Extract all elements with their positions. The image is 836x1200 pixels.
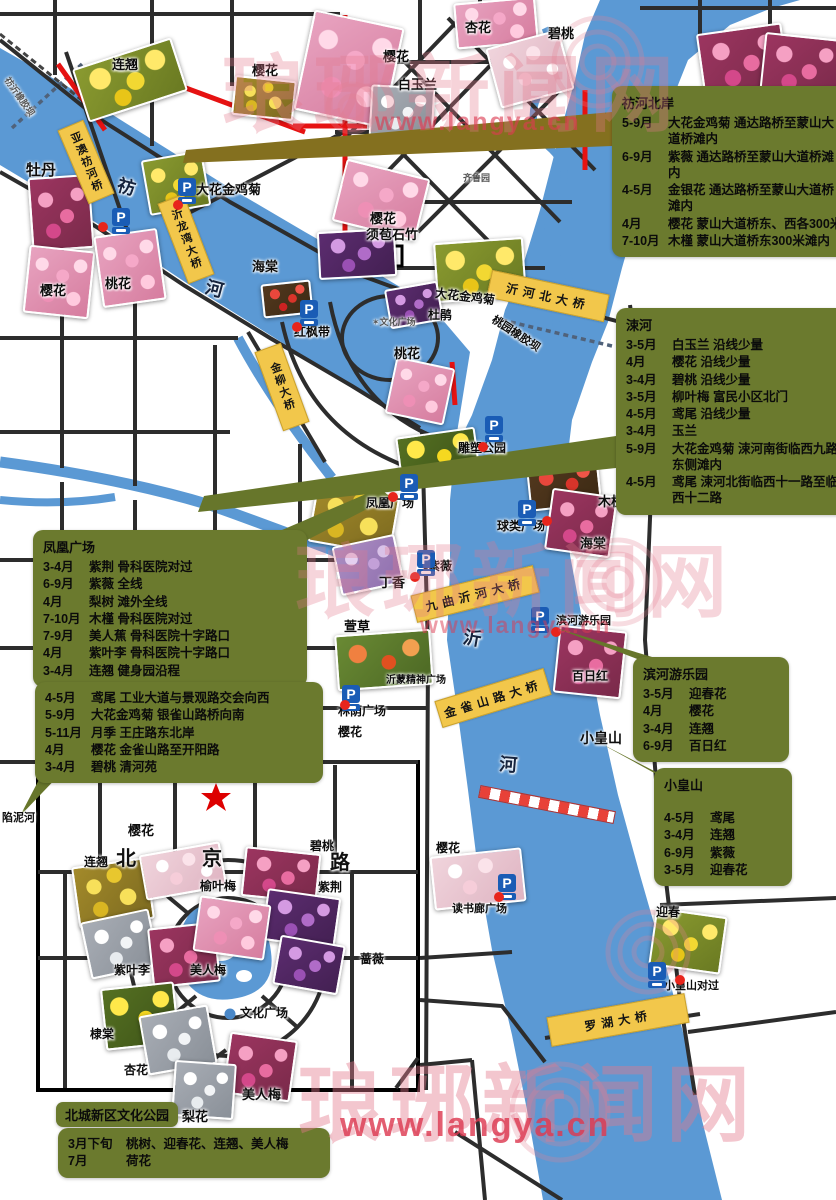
callout-line: 3-4月玉兰 [626,423,836,439]
callout-beicheng-chip: 北城新区文化公园 [56,1102,178,1127]
month-range: 7月 [68,1153,126,1169]
flower-location: 大花金鸡菊 涑河南街临西九路东侧滩内 [672,441,836,474]
month-range: 3-4月 [664,827,710,843]
callout-line: 5-9月大花金鸡菊 涑河南街临西九路东侧滩内 [626,441,836,474]
month-range: 3-5月 [626,389,672,405]
month-range: 3-4月 [45,759,91,775]
month-range: 3-4月 [626,372,672,388]
callout-line: 3-4月碧桃 清河苑 [45,759,313,775]
callout-line: 4-5月鸢尾 涑河北街临西十一路至临西十二路 [626,474,836,507]
month-range: 6-9月 [622,149,668,182]
month-range: 5-11月 [45,725,91,741]
month-range: 4-5月 [622,182,668,215]
callout-line: 4月紫叶李 骨科医院十字路口 [43,645,297,661]
flower-map-infographic: 亚澳祊河桥沂龙湾大桥金柳大桥沂河北大桥九曲沂河大桥金雀山路大桥罗湖大桥 连翘樱花… [0,0,836,1200]
callout-line: 6-9月百日红 [643,738,779,754]
flower-location: 鸢尾 [710,810,782,826]
callout-line: 4月樱花 沿线少量 [626,354,836,370]
month-range: 3-4月 [626,423,672,439]
flower-location: 木槿 骨科医院对过 [89,611,297,627]
callout-line: 7月荷花 [68,1153,320,1169]
callout-title: 小皇山 [664,775,782,794]
flower-location: 荷花 [126,1153,320,1169]
month-range: 7-10月 [43,611,89,627]
callout-line: 5-9月大花金鸡菊 银雀山路桥向南 [45,707,313,723]
callout-binhe-youleyuan: 滨河游乐园3-5月迎春花4月樱花3-4月连翘6-9月百日红 [633,657,789,762]
flower-location: 樱花 沿线少量 [672,354,836,370]
month-range: 3-5月 [626,337,672,353]
month-range: 4-5月 [664,810,710,826]
callout-line: 3-4月连翘 [643,721,779,737]
callout-title: 涑河 [626,315,836,334]
flower-location: 迎春花 [710,862,782,878]
callout-layer: 祊河北岸5-9月大花金鸡菊 通达路桥至蒙山大道桥滩内6-9月紫薇 通达路桥至蒙山… [0,0,836,1200]
month-range: 5-9月 [626,441,672,474]
callout-line: 3月下旬桃树、迎春花、连翘、美人梅 [68,1136,320,1152]
flower-location: 柳叶梅 富民小区北门 [672,389,836,405]
month-range: 3-5月 [664,862,710,878]
callout-xiaohuangshan: 小皇山4-5月鸢尾3-4月连翘6-9月紫薇3-5月迎春花 [654,768,792,886]
flower-location: 鸢尾 沿线少量 [672,406,836,422]
callout-line: 4月梨树 滩外全线 [43,594,297,610]
callout-line: 4月樱花 金雀山路至开阳路 [45,742,313,758]
callout-line: 4-5月鸢尾 沿线少量 [626,406,836,422]
callout-line: 3-5月柳叶梅 富民小区北门 [626,389,836,405]
callout-line: 7-10月木槿 蒙山大道桥东300米滩内 [622,233,836,249]
callout-line: 5-11月月季 王庄路东北岸 [45,725,313,741]
month-range: 3-4月 [43,559,89,575]
callout-line: 3-4月碧桃 沿线少量 [626,372,836,388]
callout-line: 4-5月鸢尾 工业大道与景观路交会向西 [45,690,313,706]
flower-location: 大花金鸡菊 通达路桥至蒙山大道桥滩内 [668,115,836,148]
flower-location: 白玉兰 沿线少量 [672,337,836,353]
callout-line: 4月樱花 [643,703,779,719]
month-range: 7-9月 [43,628,89,644]
flower-location: 连翘 [710,827,782,843]
month-range: 4月 [643,703,689,719]
month-range: 4月 [622,216,668,232]
callout-line: 7-9月美人蕉 骨科医院十字路口 [43,628,297,644]
flower-location: 紫薇 通达路桥至蒙山大道桥滩内 [668,149,836,182]
callout-beicheng-schedule: 3月下旬桃树、迎春花、连翘、美人梅7月荷花 [58,1128,330,1178]
callout-title: 北城新区文化公园 [65,1105,169,1124]
month-range: 6-9月 [664,845,710,861]
month-range: 5-9月 [622,115,668,148]
flower-location: 连翘 [689,721,779,737]
callout-line: 6-9月紫薇 通达路桥至蒙山大道桥滩内 [622,149,836,182]
callout-benghe-beian: 祊河北岸5-9月大花金鸡菊 通达路桥至蒙山大道桥滩内6-9月紫薇 通达路桥至蒙山… [612,86,836,257]
callout-line: 3-5月迎春花 [643,686,779,702]
callout-line: 3-5月迎春花 [664,862,782,878]
flower-location: 樱花 金雀山路至开阳路 [91,742,313,758]
month-range: 4月 [45,742,91,758]
month-range: 6-9月 [43,576,89,592]
month-range: 7-10月 [622,233,668,249]
callout-line: 3-4月连翘 [664,827,782,843]
flower-location: 美人蕉 骨科医院十字路口 [89,628,297,644]
callout-gongye-dadao: 4-5月鸢尾 工业大道与景观路交会向西5-9月大花金鸡菊 银雀山路桥向南5-11… [35,682,323,783]
month-range: 3月下旬 [68,1136,126,1152]
callout-line: 4月樱花 蒙山大道桥东、西各300米 [622,216,836,232]
month-range: 3-4月 [43,663,89,679]
flower-location: 鸢尾 涑河北街临西十一路至临西十二路 [672,474,836,507]
callout-fenghuang-guangchang: 凤凰广场3-4月紫荆 骨科医院对过6-9月紫薇 全线4月梨树 滩外全线7-10月… [33,530,307,687]
callout-line: 3-4月紫荆 骨科医院对过 [43,559,297,575]
callout-line: 4-5月鸢尾 [664,810,782,826]
callout-title: 滨河游乐园 [643,664,779,683]
flower-location: 碧桃 清河苑 [91,759,313,775]
callout-title: 凤凰广场 [43,537,297,556]
month-range: 3-5月 [643,686,689,702]
month-range: 5-9月 [45,707,91,723]
month-range: 4月 [43,645,89,661]
flower-location: 樱花 蒙山大道桥东、西各300米 [668,216,836,232]
flower-location: 桃树、迎春花、连翘、美人梅 [126,1136,320,1152]
flower-location: 紫叶李 骨科医院十字路口 [89,645,297,661]
callout-line: 3-5月白玉兰 沿线少量 [626,337,836,353]
flower-location: 紫荆 骨科医院对过 [89,559,297,575]
month-range: 3-4月 [643,721,689,737]
callout-suhe: 涑河3-5月白玉兰 沿线少量4月樱花 沿线少量3-4月碧桃 沿线少量3-5月柳叶… [616,308,836,515]
flower-location: 玉兰 [672,423,836,439]
callout-line: 3-4月连翘 健身园沿程 [43,663,297,679]
callout-line: 6-9月紫薇 全线 [43,576,297,592]
flower-location: 月季 王庄路东北岸 [91,725,313,741]
flower-location: 百日红 [689,738,779,754]
flower-location: 金银花 通达路桥至蒙山大道桥滩内 [668,182,836,215]
callout-line: 6-9月紫薇 [664,845,782,861]
flower-location: 碧桃 沿线少量 [672,372,836,388]
flower-location: 紫薇 [710,845,782,861]
flower-location: 木槿 蒙山大道桥东300米滩内 [668,233,836,249]
callout-line: 4-5月金银花 通达路桥至蒙山大道桥滩内 [622,182,836,215]
flower-location: 连翘 健身园沿程 [89,663,297,679]
month-range: 6-9月 [643,738,689,754]
month-range: 4-5月 [45,690,91,706]
flower-location: 紫薇 全线 [89,576,297,592]
flower-location: 迎春花 [689,686,779,702]
month-range: 4-5月 [626,406,672,422]
callout-line: 7-10月木槿 骨科医院对过 [43,611,297,627]
flower-location: 梨树 滩外全线 [89,594,297,610]
month-range: 4月 [626,354,672,370]
callout-title: 祊河北岸 [622,93,836,112]
flower-location: 鸢尾 工业大道与景观路交会向西 [91,690,313,706]
callout-line: 5-9月大花金鸡菊 通达路桥至蒙山大道桥滩内 [622,115,836,148]
month-range: 4-5月 [626,474,672,507]
flower-location: 樱花 [689,703,779,719]
flower-location: 大花金鸡菊 银雀山路桥向南 [91,707,313,723]
month-range: 4月 [43,594,89,610]
